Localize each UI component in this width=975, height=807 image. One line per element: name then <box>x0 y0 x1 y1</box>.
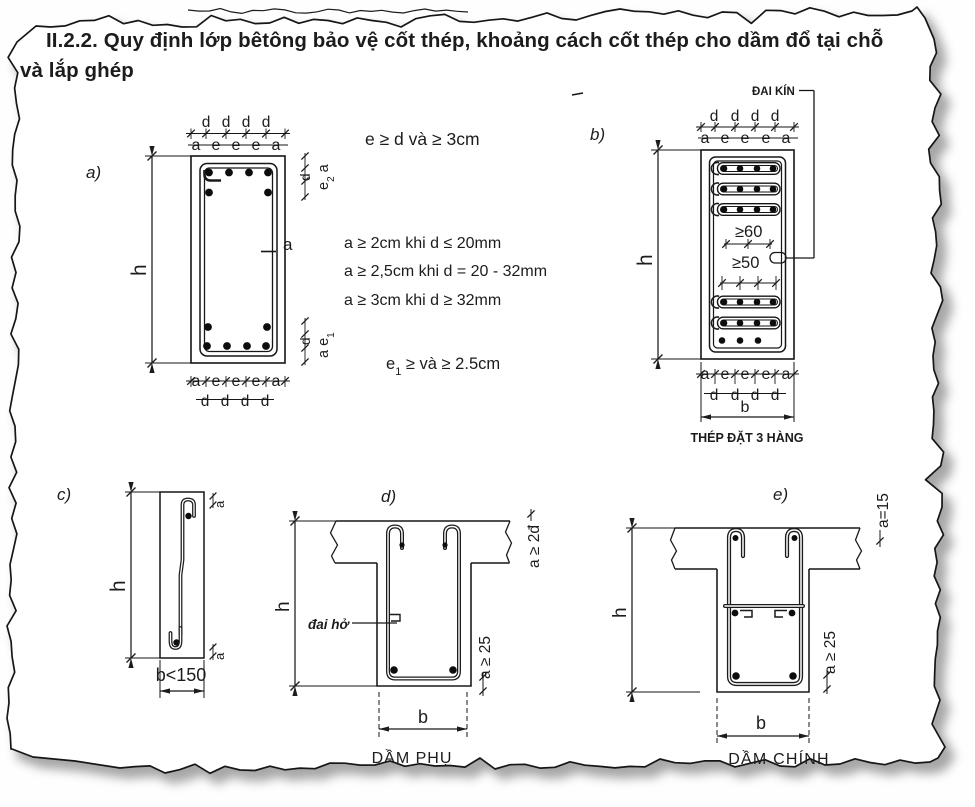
svg-text:e ≥ d và ≥ 3cm: e ≥ d và ≥ 3cm <box>365 129 480 149</box>
svg-text:II.2.2. Quy định lớp bêtông bả: II.2.2. Quy định lớp bêtông bảo vệ cốt t… <box>46 28 883 52</box>
svg-text:d: d <box>222 114 231 131</box>
svg-text:và lắp ghép: và lắp ghép <box>20 58 134 82</box>
svg-text:b: b <box>756 713 766 733</box>
svg-text:≥50: ≥50 <box>732 254 759 272</box>
svg-text:a: a <box>212 652 227 660</box>
svg-text:d: d <box>261 393 270 410</box>
svg-text:d: d <box>262 114 271 131</box>
svg-text:h: h <box>634 254 657 266</box>
svg-text:d): d) <box>381 487 396 506</box>
svg-text:a: a <box>782 130 791 147</box>
svg-text:d: d <box>751 387 760 404</box>
svg-text:d: d <box>241 393 250 410</box>
svg-text:e: e <box>721 130 730 147</box>
svg-text:e: e <box>252 137 261 154</box>
svg-text:d: d <box>710 108 719 125</box>
svg-text:d: d <box>771 387 780 404</box>
svg-text:DẦM CHÍNH: DẦM CHÍNH <box>728 749 829 768</box>
svg-text:a ≥ 2cm khi d ≤ 20mm: a ≥ 2cm khi d ≤ 20mm <box>344 235 501 252</box>
svg-text:d: d <box>202 114 211 131</box>
svg-text:DẦM PHỤ: DẦM PHỤ <box>372 748 453 767</box>
svg-text:d: d <box>221 393 230 410</box>
svg-text:a ≥ 3cm khi d ≥ 32mm: a ≥ 3cm khi d ≥ 32mm <box>344 292 501 309</box>
svg-text:a ≥ 25: a ≥ 25 <box>477 636 494 679</box>
svg-text:c): c) <box>57 485 71 504</box>
svg-text:b<150: b<150 <box>156 665 207 685</box>
svg-text:a ≥ 25: a ≥ 25 <box>822 631 839 674</box>
svg-text:a ≥ 2đ: a ≥ 2đ <box>526 525 543 568</box>
svg-text:e: e <box>212 137 221 154</box>
svg-text:a: a <box>701 130 710 147</box>
svg-text:d: d <box>710 387 719 404</box>
svg-text:b: b <box>741 399 750 416</box>
svg-text:e: e <box>232 137 241 154</box>
svg-text:a: a <box>212 500 227 508</box>
svg-text:≥60: ≥60 <box>735 223 762 241</box>
svg-text:a: a <box>272 137 281 154</box>
svg-text:b): b) <box>590 125 605 144</box>
svg-text:h: h <box>107 580 130 592</box>
svg-text:đai hở: đai hở <box>308 617 351 632</box>
svg-text:e: e <box>741 130 750 147</box>
svg-text:a): a) <box>86 163 101 182</box>
svg-text:d: d <box>201 393 210 410</box>
svg-text:THÉP ĐẶT 3 HÀNG: THÉP ĐẶT 3 HÀNG <box>691 430 804 445</box>
svg-text:h: h <box>128 264 151 276</box>
svg-text:d: d <box>298 173 313 181</box>
svg-text:e): e) <box>773 485 788 504</box>
svg-text:a: a <box>283 235 293 254</box>
svg-text:d: d <box>731 387 740 404</box>
svg-text:ĐAI KÍN: ĐAI KÍN <box>752 85 795 98</box>
svg-text:b: b <box>418 707 428 727</box>
svg-text:e: e <box>762 130 771 147</box>
svg-text:h: h <box>273 601 294 612</box>
svg-text:d: d <box>242 114 251 131</box>
svg-text:a=15: a=15 <box>875 493 892 528</box>
svg-text:d: d <box>298 337 313 345</box>
svg-text:a: a <box>192 137 201 154</box>
svg-text:h: h <box>610 607 631 618</box>
svg-text:a ≥ 2,5cm khi d = 20 - 32mm: a ≥ 2,5cm khi d = 20 - 32mm <box>344 263 547 280</box>
